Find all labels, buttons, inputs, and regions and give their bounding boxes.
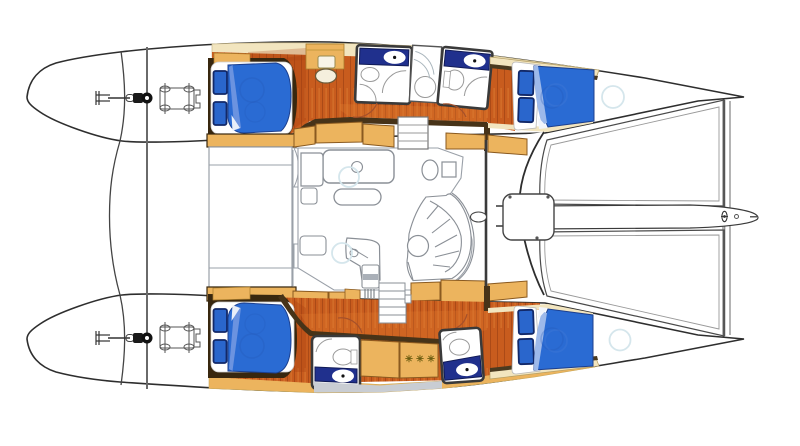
svg-text:✳: ✳ [416, 354, 425, 365]
svg-text:✳: ✳ [427, 354, 436, 365]
svg-text:✳: ✳ [405, 354, 414, 365]
